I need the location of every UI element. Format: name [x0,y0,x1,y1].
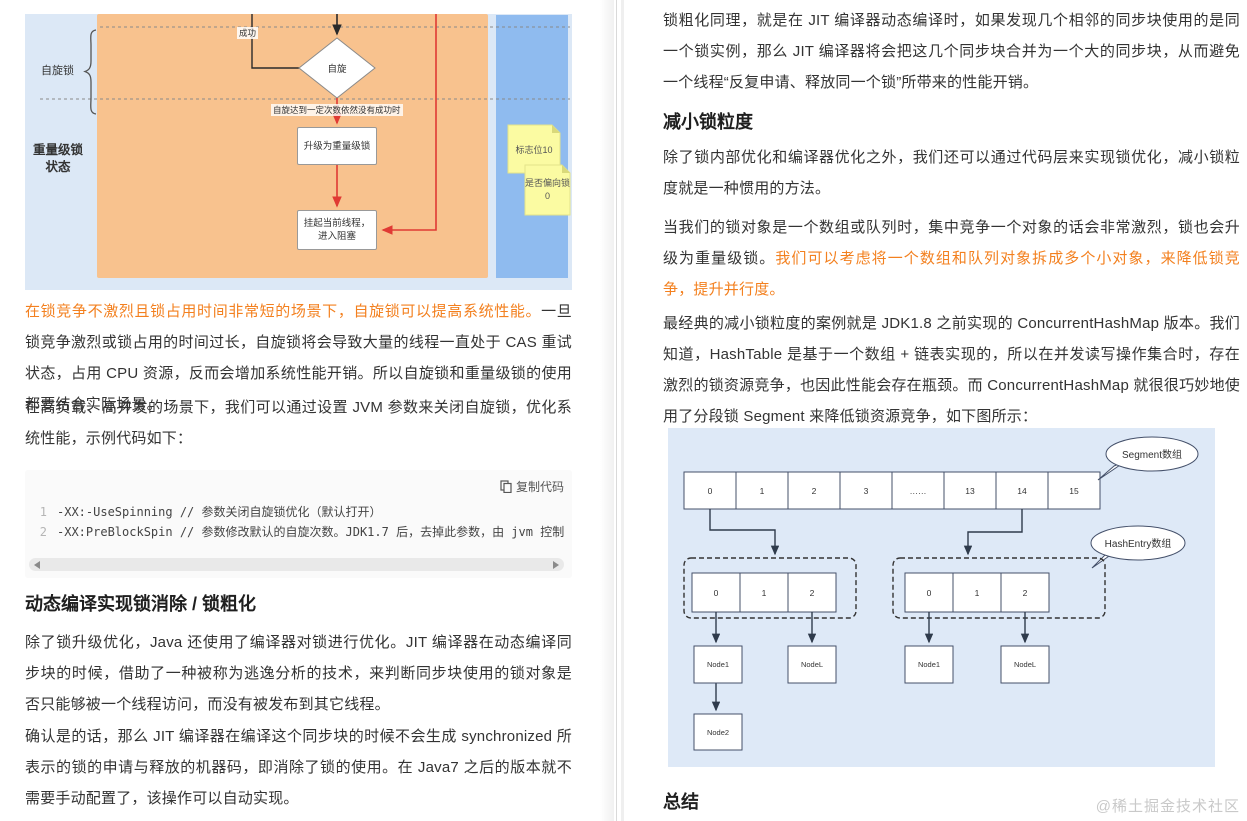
segment-cell: 1 [760,486,765,496]
success-loop-line [252,14,299,68]
paragraph-jvm-param: 在高负载、高并发的场景下，我们可以通过设置 JVM 参数来关闭自旋锁，优化系统性… [25,392,572,454]
sticky-note-biased-text: 是否偏向锁 0 [525,177,570,203]
heading-reduce-granularity: 减小锁粒度 [663,108,753,134]
entry-cell: 2 [810,588,815,598]
flow-arrow-right-branch [383,14,436,230]
copy-code-button[interactable]: 复制代码 [500,478,564,495]
upgrade-heavyweight-box: 升级为重量级锁 [297,127,377,165]
segment-diagram-svg: 0 1 2 3 …… 13 14 15 Segment数组 [668,428,1215,767]
right-hashentry-array: 0 1 2 [905,573,1049,612]
entry-cell: 2 [1023,588,1028,598]
watermark: @稀土掘金技术社区 [1060,795,1240,816]
node-label: Node1 [918,660,940,669]
paragraph-concurrenthashmap: 最经典的减小锁粒度的案例就是 JDK1.8 之前实现的 ConcurrentHa… [663,308,1240,432]
copy-code-label: 复制代码 [516,478,564,495]
spin-fail-note: 自旋达到一定次数依然没有成功时 [271,104,403,116]
segment-cell: 2 [812,486,817,496]
sticky-note-flag-text: 标志位10 [508,144,560,157]
code-block: 复制代码 1-XX:-UseSpinning // 参数关闭自旋锁优化（默认打开… [25,470,572,578]
paragraph-code-level-optimization: 除了锁内部优化和编译器优化之外，我们还可以通过代码层来实现锁优化，减小锁粒度就是… [663,142,1240,204]
svg-text:Segment数组: Segment数组 [1122,448,1182,461]
segment-array: 0 1 2 3 …… 13 14 15 [684,472,1100,509]
segment-cell: 3 [864,486,869,496]
paragraph-jit-escape-analysis: 除了锁升级优化，Java 还使用了编译器对锁进行优化。JIT 编译器在动态编译同… [25,627,572,720]
entry-cell: 0 [927,588,932,598]
heading-lock-elimination: 动态编译实现锁消除 / 锁粗化 [25,590,256,616]
segment-cell: 14 [1017,486,1027,496]
node-label: NodeL [1014,660,1036,669]
document-page: 自旋锁 重量级锁状态 成功 自旋 自旋达到一定次数依然没有成功时 升级为重量级锁… [0,0,1247,821]
line-number: 2 [25,522,47,542]
highlight-spinlock-benefit: 在锁竞争不激烈且锁占用时间非常短的场景下，自旋锁可以提高系统性能。 [25,303,541,320]
node-label: NodeL [801,660,823,669]
heading-summary: 总结 [663,788,699,814]
code-text: -XX:-UseSpinning // 参数关闭自旋锁优化（默认打开） [57,505,382,519]
code-line: 2-XX:PreBlockSpin // 参数修改默认的自旋次数。JDK1.7 … [25,522,572,542]
page-gap-shadow [600,0,614,821]
segment-cell-ellipsis: …… [910,486,927,496]
spin-diamond-label: 自旋 [312,61,362,75]
paragraph-array-queue-lock: 当我们的锁对象是一个数组或队列时，集中竞争一个对象的话会非常激烈，锁也会升级为重… [663,212,1240,305]
arrow-segment0-to-entries [710,509,775,554]
svg-text:HashEntry数组: HashEntry数组 [1105,537,1172,550]
scrollbar-right-arrow-icon[interactable] [553,561,559,569]
code-text: -XX:PreBlockSpin // 参数修改默认的自旋次数。JDK1.7 后… [57,525,564,539]
segment-lock-diagram: 0 1 2 3 …… 13 14 15 Segment数组 [668,428,1215,767]
line-number: 1 [25,502,47,522]
paragraph-lock-coarsening: 锁粗化同理，就是在 JIT 编译器动态编译时，如果发现几个相邻的同步块使用的是同… [663,5,1240,98]
entry-cell: 1 [975,588,980,598]
entry-cell: 0 [714,588,719,598]
node-label: Node2 [707,728,729,737]
page-divider-line-2 [621,0,624,821]
segment-cell: 13 [965,486,975,496]
suspend-thread-box: 挂起当前线程，进入阻塞 [297,210,377,250]
code-horizontal-scrollbar[interactable] [29,558,564,571]
code-line: 1-XX:-UseSpinning // 参数关闭自旋锁优化（默认打开） [25,502,572,522]
page-divider-line [616,0,617,821]
segment-array-callout: Segment数组 [1098,437,1198,480]
hashentry-array-callout: HashEntry数组 [1091,526,1185,568]
heavyweight-state-label: 重量级锁状态 [27,142,89,176]
node-label: Node1 [707,660,729,669]
segment-cell: 0 [708,486,713,496]
paragraph-lock-elimination-detail: 确认是的话，那么 JIT 编译器在编译这个同步块的时候不会生成 synchron… [25,721,572,814]
entry-cell: 1 [762,588,767,598]
right-page: 锁粗化同理，就是在 JIT 编译器动态编译时，如果发现几个相邻的同步块使用的是同… [663,0,1240,821]
arrow-segment14-to-entries [968,509,1022,554]
scrollbar-left-arrow-icon[interactable] [34,561,40,569]
success-label: 成功 [237,27,258,39]
left-page: 自旋锁 重量级锁状态 成功 自旋 自旋达到一定次数依然没有成功时 升级为重量级锁… [25,0,572,821]
spin-lock-label: 自旋锁 [41,62,74,78]
spin-region-brace [85,30,96,114]
copy-icon [500,480,512,493]
node-boxes: Node1 NodeL Node1 NodeL Node2 [694,646,1049,750]
lock-upgrade-flowchart: 自旋锁 重量级锁状态 成功 自旋 自旋达到一定次数依然没有成功时 升级为重量级锁… [25,14,572,290]
left-hashentry-array: 0 1 2 [692,573,836,612]
segment-cell: 15 [1069,486,1079,496]
